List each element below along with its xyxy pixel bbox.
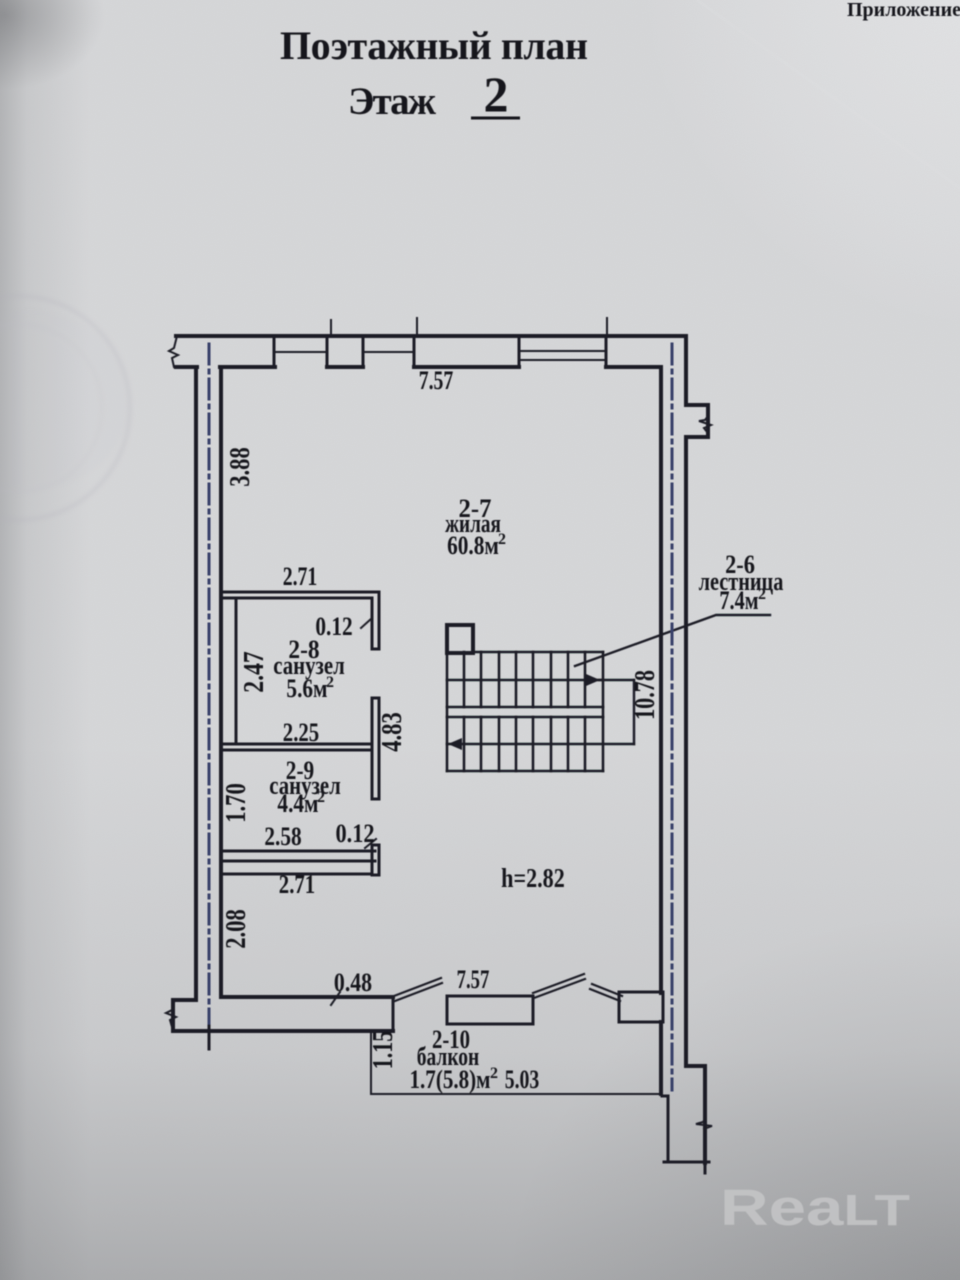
svg-text:1.70: 1.70 [219,783,251,823]
svg-text:4.83: 4.83 [375,712,407,752]
svg-text:2.47: 2.47 [237,651,270,693]
svg-text:h=2.82: h=2.82 [501,864,565,894]
svg-text:2: 2 [484,66,509,122]
svg-text:Приложение: Приложение [847,0,960,21]
svg-text:0.48: 0.48 [334,969,372,997]
svg-text:1.7(5.8)м: 1.7(5.8)м [410,1066,491,1095]
svg-text:2: 2 [317,789,325,806]
svg-text:2: 2 [498,531,506,548]
svg-text:2: 2 [490,1065,498,1082]
svg-text:10.78: 10.78 [628,670,661,720]
svg-text:Этаж: Этаж [348,80,437,123]
svg-text:5.6м: 5.6м [286,675,327,703]
svg-text:4.4м: 4.4м [277,790,318,818]
svg-text:2: 2 [326,674,334,691]
svg-text:7.57: 7.57 [419,365,454,394]
svg-text:2.08: 2.08 [219,909,251,949]
svg-text:7.4м: 7.4м [719,587,758,616]
svg-text:7.57: 7.57 [457,965,490,994]
svg-text:Поэтажный план: Поэтажный план [280,23,588,68]
svg-text:2.25: 2.25 [283,719,319,748]
svg-text:2.71: 2.71 [283,561,318,590]
svg-text:0.12: 0.12 [335,819,374,848]
svg-text:2: 2 [758,586,766,603]
svg-text:2.71: 2.71 [279,871,315,900]
svg-text:ReaLT: ReaLT [720,1179,910,1236]
svg-text:1.15: 1.15 [366,1031,399,1070]
svg-text:3.88: 3.88 [223,447,255,487]
svg-text:0.12: 0.12 [315,613,352,641]
svg-text:60.8м: 60.8м [447,532,499,560]
svg-text:5.03: 5.03 [505,1064,540,1093]
svg-text:2.58: 2.58 [264,823,301,851]
